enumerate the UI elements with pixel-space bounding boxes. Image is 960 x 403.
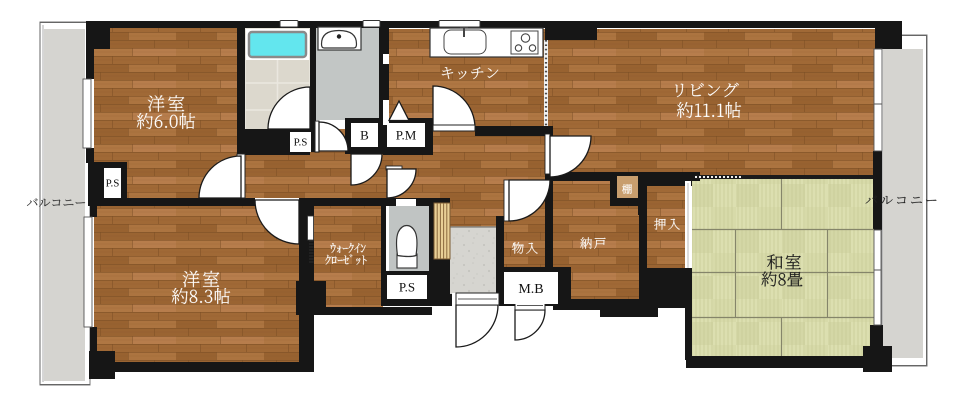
svg-text:P.S: P.S <box>106 178 120 190</box>
svg-text:P.S: P.S <box>399 279 415 294</box>
svg-text:P.M: P.M <box>396 127 417 142</box>
svg-text:P.S: P.S <box>294 137 308 149</box>
svg-text:B: B <box>360 127 369 142</box>
svg-text:M.B: M.B <box>518 282 543 297</box>
